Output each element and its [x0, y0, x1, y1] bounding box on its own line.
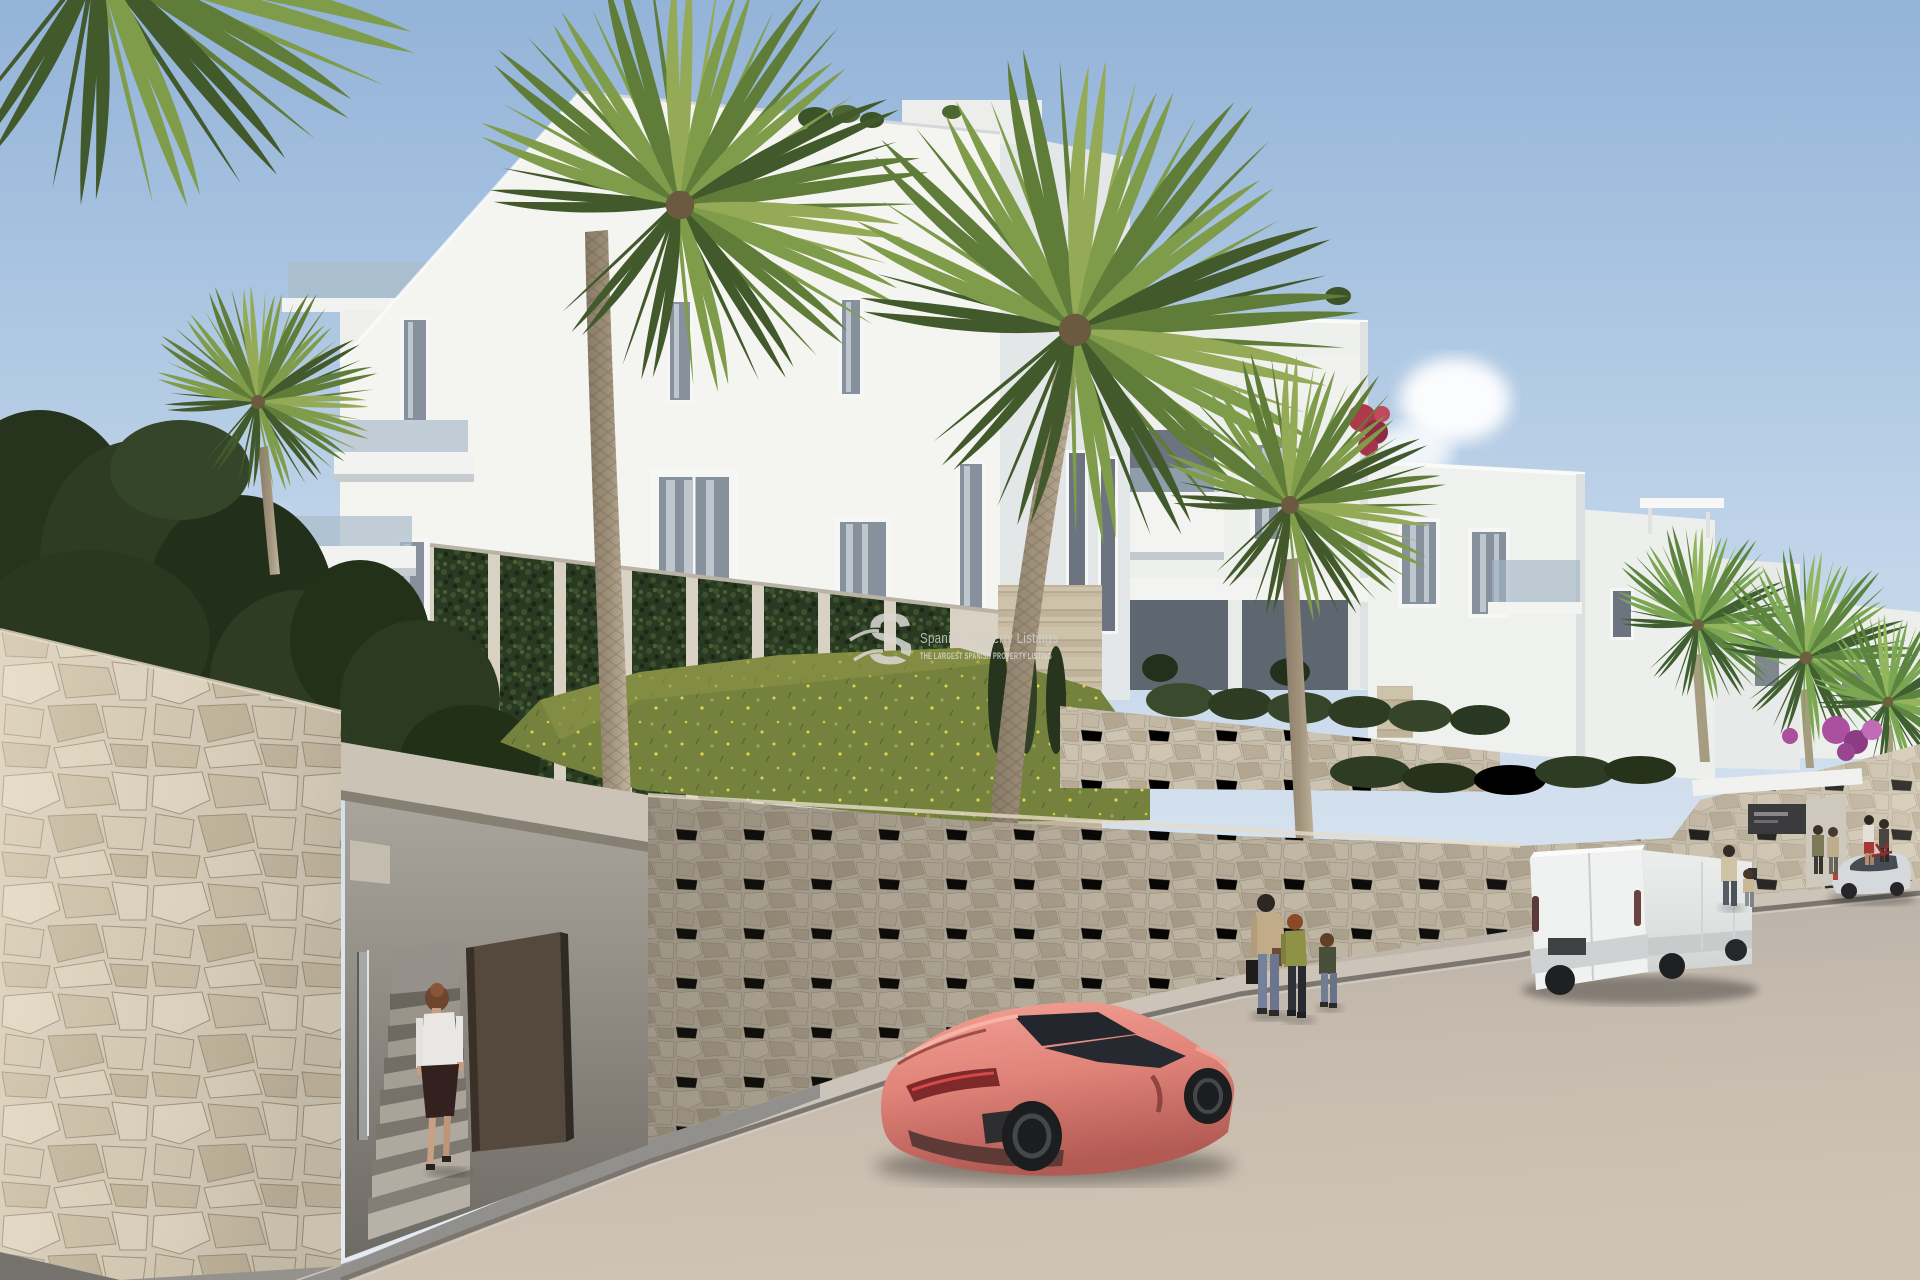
watermark-logo: S	[866, 600, 914, 680]
skirt	[421, 1064, 459, 1118]
blouse	[420, 1012, 460, 1068]
pergola-roof	[1640, 498, 1724, 508]
terrace-glass	[340, 420, 468, 456]
glass-balustrade	[1492, 560, 1580, 604]
watermark-title: Spanish Property Listings	[920, 630, 1058, 647]
sunlit-patch	[350, 840, 390, 884]
taillamp	[1634, 890, 1641, 926]
ground-loggia	[1098, 578, 1368, 690]
complex-entrance-sign	[1748, 804, 1806, 834]
rear-wheel	[1002, 1101, 1062, 1171]
entrance-glass-railing	[358, 950, 368, 1140]
license-plate	[1548, 938, 1586, 955]
front-wheel	[1184, 1068, 1232, 1124]
entrance-door	[466, 932, 566, 1152]
street-retaining-wall-left	[0, 630, 341, 1280]
shopping-bag	[1246, 960, 1260, 984]
taillamp	[1532, 896, 1539, 932]
watermark-tagline: THE LARGEST SPANISH PROPERTY LISTING	[920, 651, 1052, 661]
render-canvas: S Spanish Property Listings THE LARGEST …	[0, 0, 1920, 1280]
